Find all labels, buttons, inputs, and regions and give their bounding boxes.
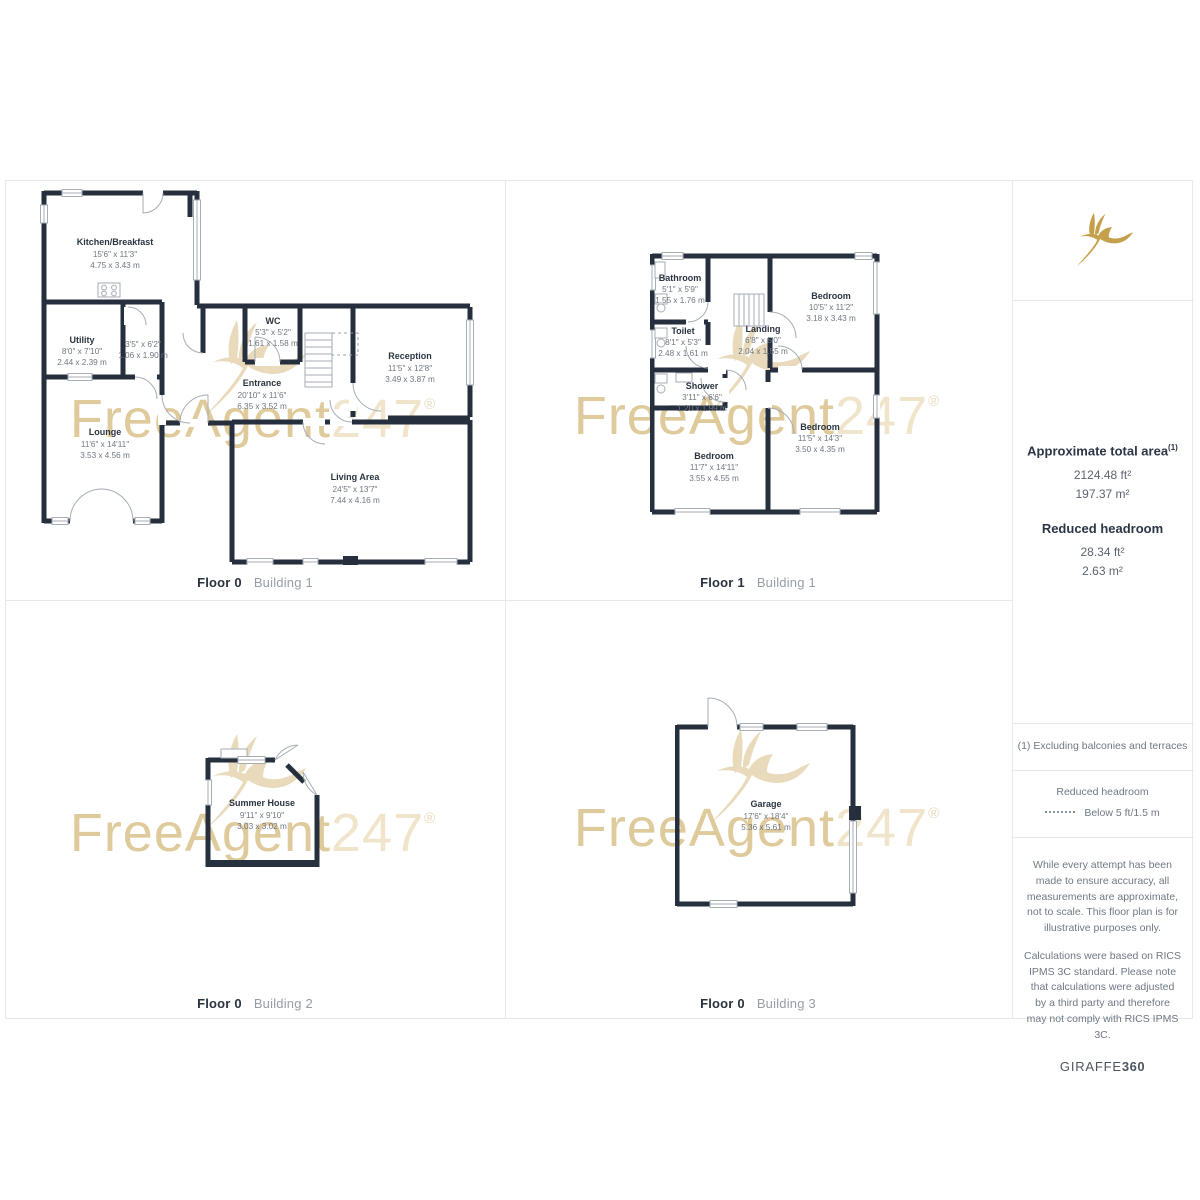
floor-label: Floor 0 [197, 575, 242, 590]
svg-text:24'5" x 13'7": 24'5" x 13'7" [333, 485, 378, 494]
svg-text:9'11" x 9'10": 9'11" x 9'10" [240, 811, 284, 820]
row-divider [6, 600, 1012, 601]
room-label: Entrance [243, 378, 282, 388]
disclaimer-paragraph-1: While every attempt has been made to ens… [1012, 858, 1193, 937]
svg-text:1.61 x 1.58 m: 1.61 x 1.58 m [248, 339, 298, 348]
svg-text:15'6" x 11'3": 15'6" x 11'3" [93, 250, 137, 259]
legend-heading: Reduced headroom [1056, 786, 1148, 798]
svg-text:6.35 x 3.52 m: 6.35 x 3.52 m [237, 402, 287, 411]
room-label: WC [266, 316, 281, 326]
room-label: Kitchen/Breakfast [77, 237, 154, 247]
floorplan-floor0-building1: Kitchen/Breakfast 15'6" x 11'3" 4.75 x 3… [40, 185, 510, 565]
floorplan-page: FreeAgent247® FreeAgent247® FreeAgent247… [0, 0, 1200, 1200]
svg-text:17'6" x 18'4": 17'6" x 18'4" [744, 812, 789, 821]
room-label: Garage [750, 799, 781, 809]
svg-text:4.75 x 3.43 m: 4.75 x 3.43 m [90, 261, 140, 270]
footnote-cell: (1) Excluding balconies and terraces [1012, 722, 1193, 769]
total-area-m: 197.37 m² [1075, 487, 1129, 501]
svg-text:11'6" x 14'11": 11'6" x 14'11" [81, 440, 129, 449]
total-area-heading: Approximate total area(1) [1027, 443, 1178, 458]
svg-text:2.04 x 1.55 m: 2.04 x 1.55 m [738, 347, 788, 356]
svg-text:3.50 x 4.35 m: 3.50 x 4.35 m [795, 445, 845, 454]
legend-item: Below 5 ft/1.5 m [1045, 807, 1159, 819]
room-label: Toilet [671, 326, 694, 336]
floor-label: Floor 1 [700, 575, 745, 590]
svg-text:11'5" x 14'3": 11'5" x 14'3" [798, 434, 842, 443]
svg-text:1.55 x 1.76 m: 1.55 x 1.76 m [655, 296, 705, 305]
svg-text:3.49 x 3.87 m: 3.49 x 3.87 m [385, 375, 435, 384]
room-label: Landing [746, 324, 781, 334]
room-label: Bathroom [659, 273, 702, 283]
svg-text:3.55 x 4.55 m: 3.55 x 4.55 m [689, 474, 739, 483]
svg-text:6'8" x 5'0": 6'8" x 5'0" [745, 336, 781, 345]
room-label: Bedroom [811, 291, 851, 301]
svg-text:8'1" x 5'3": 8'1" x 5'3" [665, 338, 701, 347]
building-label: Building 1 [757, 575, 816, 590]
svg-text:1.06 x 1.90 m: 1.06 x 1.90 m [118, 351, 168, 360]
room-label: Shower [686, 381, 719, 391]
bird-logo-icon [1069, 211, 1137, 269]
caption-floor0-building1: Floor 0Building 1 [105, 575, 405, 590]
room-label: Utility [69, 335, 94, 345]
total-area-ft: 2124.48 ft² [1074, 468, 1131, 482]
svg-text:11'7" x 14'11": 11'7" x 14'11" [690, 463, 738, 472]
floor-label: Floor 0 [197, 996, 242, 1011]
svg-text:10'5" x 11'2": 10'5" x 11'2" [809, 303, 853, 312]
footnote-ref: (1) [1168, 443, 1178, 452]
svg-text:5'1" x 5'9": 5'1" x 5'9" [662, 285, 698, 294]
legend-cell: Reduced headroom Below 5 ft/1.5 m [1012, 769, 1193, 836]
room-label: Lounge [89, 427, 122, 437]
room-label: Bedroom [694, 451, 734, 461]
reduced-headroom-heading: Reduced headroom [1042, 521, 1163, 536]
building-label: Building 2 [254, 996, 313, 1011]
disclaimer-paragraph-2: Calculations were based on RICS IPMS 3C … [1012, 949, 1193, 1044]
building-label: Building 3 [757, 996, 816, 1011]
svg-text:7.44 x 4.16 m: 7.44 x 4.16 m [330, 496, 380, 505]
svg-text:3'11" x 6'6": 3'11" x 6'6" [682, 393, 722, 402]
svg-text:2.44 x 2.39 m: 2.44 x 2.39 m [57, 358, 107, 367]
caption-floor0-building3: Floor 0Building 3 [608, 996, 908, 1011]
svg-text:20'10" x 11'6": 20'10" x 11'6" [238, 391, 287, 400]
svg-text:3.03 x 3.02 m: 3.03 x 3.02 m [237, 822, 287, 831]
reduced-headroom-m: 2.63 m² [1082, 564, 1123, 578]
svg-text:5'3" x 5'2": 5'3" x 5'2" [255, 328, 291, 337]
room-label: Reception [388, 351, 432, 361]
svg-text:11'5" x 12'8": 11'5" x 12'8" [388, 364, 432, 373]
area-summary-cell: Approximate total area(1) 2124.48 ft² 19… [1012, 299, 1193, 722]
svg-text:5.36 x 5.61 m: 5.36 x 5.61 m [741, 823, 791, 832]
svg-text:1.20 x 1.99 m: 1.20 x 1.99 m [677, 404, 727, 413]
svg-text:3.53 x 4.56 m: 3.53 x 4.56 m [80, 451, 130, 460]
svg-text:2.48 x 1.61 m: 2.48 x 1.61 m [658, 349, 708, 358]
svg-text:3'5" x 6'2": 3'5" x 6'2" [125, 340, 161, 349]
giraffe360-logo: GIRAFFE360 [1012, 1059, 1193, 1074]
building-label: Building 1 [254, 575, 313, 590]
floorplan-floor1-building1: Bathroom 5'1" x 5'9" 1.55 x 1.76 m Toile… [650, 250, 880, 515]
floorplan-floor0-building3: Garage 17'6" x 18'4" 5.36 x 5.61 m [675, 688, 865, 913]
room-label: Living Area [331, 472, 381, 482]
svg-text:8'0" x 7'10": 8'0" x 7'10" [62, 347, 102, 356]
caption-floor0-building2: Floor 0Building 2 [105, 996, 405, 1011]
logo-cell [1012, 180, 1193, 299]
reduced-headroom-ft: 28.34 ft² [1080, 545, 1124, 559]
dashed-line-icon [1045, 811, 1075, 813]
room-label: Summer House [229, 798, 295, 808]
disclaimer-cell: While every attempt has been made to ens… [1012, 836, 1193, 1019]
footnote-text: (1) Excluding balconies and terraces [1018, 740, 1188, 752]
room-label: Bedroom [800, 422, 840, 432]
floor-label: Floor 0 [700, 996, 745, 1011]
caption-floor1-building1: Floor 1Building 1 [608, 575, 908, 590]
svg-text:3.18 x 3.43 m: 3.18 x 3.43 m [806, 314, 856, 323]
floorplan-floor0-building2: Summer House 9'11" x 9'10" 3.03 x 3.02 m [205, 743, 320, 870]
